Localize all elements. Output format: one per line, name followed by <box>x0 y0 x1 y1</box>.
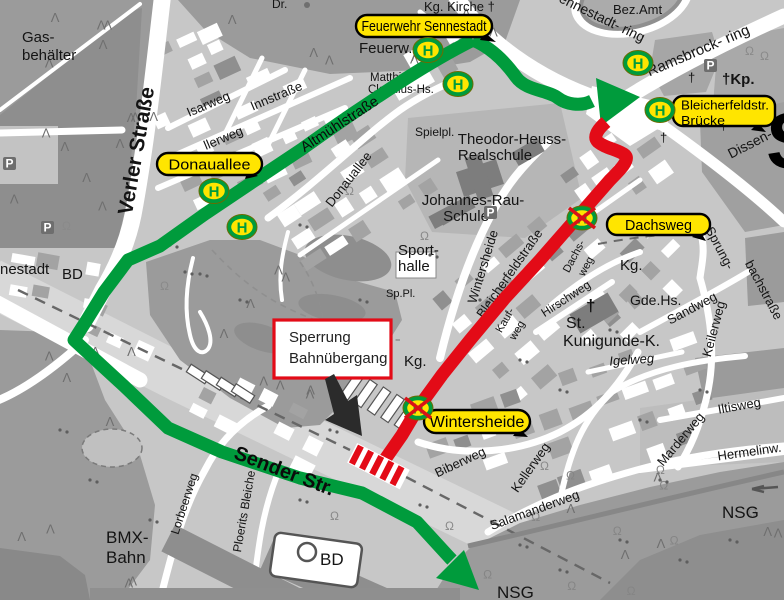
svg-text:Kg.: Kg. <box>404 353 427 370</box>
svg-text:†: † <box>660 130 667 145</box>
svg-text:Λ: Λ <box>127 344 136 359</box>
svg-text:H: H <box>453 77 464 94</box>
svg-text:Λ: Λ <box>42 125 51 140</box>
svg-text:Dachsweg: Dachsweg <box>625 217 692 234</box>
svg-text:Ω: Ω <box>330 509 339 523</box>
svg-text:Ω: Ω <box>760 49 769 63</box>
svg-text:Bez.Amt: Bez.Amt <box>613 2 663 17</box>
svg-text:Λ: Λ <box>763 524 772 539</box>
svg-text:Ω: Ω <box>745 44 754 58</box>
svg-text:Bahn: Bahn <box>106 548 146 567</box>
svg-text:Schule: Schule <box>443 208 489 225</box>
svg-text:Theodor-Heuss-: Theodor-Heuss- <box>458 131 566 148</box>
svg-text:behälter: behälter <box>22 47 76 64</box>
svg-text:P: P <box>43 221 51 235</box>
svg-text:Ω: Ω <box>483 567 492 581</box>
svg-text:NSG: NSG <box>722 503 759 522</box>
svg-text:Ω: Ω <box>160 279 169 293</box>
svg-text:Ω: Ω <box>566 469 575 483</box>
svg-text:†: † <box>586 296 595 315</box>
svg-text:Bleicherfeldstr.: Bleicherfeldstr. <box>681 98 769 113</box>
svg-text:†Kp.: †Kp. <box>722 71 755 88</box>
svg-text:Feuerwehr Sennestadt: Feuerwehr Sennestadt <box>362 19 487 35</box>
svg-text:Λ: Λ <box>116 136 125 151</box>
svg-text:Johannes-Rau-: Johannes-Rau- <box>422 192 525 209</box>
svg-text:Λ: Λ <box>46 521 55 536</box>
svg-text:Ω: Ω <box>613 524 622 538</box>
svg-text:Ω: Ω <box>567 579 576 593</box>
svg-text:Λ: Λ <box>106 414 115 429</box>
svg-text:Λ: Λ <box>306 383 315 398</box>
svg-text:Ω: Ω <box>445 519 454 533</box>
svg-text:Λ: Λ <box>309 45 318 60</box>
svg-text:Λ: Λ <box>259 374 268 389</box>
svg-text:Spielpl.: Spielpl. <box>415 125 454 139</box>
svg-text:Ω: Ω <box>420 229 429 243</box>
svg-text:Kg. Kirche †: Kg. Kirche † <box>424 0 495 14</box>
svg-text:Wintersheide: Wintersheide <box>430 414 525 431</box>
svg-text:†: † <box>688 70 695 85</box>
svg-text:Dr.: Dr. <box>272 0 287 11</box>
svg-text:H: H <box>423 43 434 60</box>
svg-text:Bahnübergang: Bahnübergang <box>289 350 387 367</box>
svg-text:Sp.Pl.: Sp.Pl. <box>386 288 415 300</box>
svg-text:Kunigunde-K.: Kunigunde-K. <box>563 333 660 350</box>
svg-text:Λ: Λ <box>61 139 70 154</box>
svg-text:Λ: Λ <box>62 370 71 385</box>
svg-text:Λ: Λ <box>82 170 91 185</box>
svg-text:Ω: Ω <box>627 584 636 598</box>
svg-text:H: H <box>237 220 248 237</box>
svg-text:BD: BD <box>320 550 344 569</box>
svg-text:Λ: Λ <box>99 37 108 52</box>
svg-text:Ω: Ω <box>62 219 71 233</box>
svg-text:St.: St. <box>566 315 586 332</box>
svg-text:Λ: Λ <box>657 536 666 551</box>
svg-text:NSG: NSG <box>497 583 534 600</box>
svg-text:H: H <box>209 184 220 201</box>
svg-text:Λ: Λ <box>654 469 663 484</box>
svg-text:Feuerw.: Feuerw. <box>359 40 412 57</box>
svg-text:Λ: Λ <box>51 10 60 25</box>
svg-text:Λ: Λ <box>325 52 334 67</box>
svg-text:Gas-: Gas- <box>22 29 55 46</box>
svg-text:BMX-: BMX- <box>106 528 149 547</box>
svg-text:nestadt: nestadt <box>0 261 50 278</box>
svg-text:Realschule: Realschule <box>458 147 532 164</box>
svg-text:Λ: Λ <box>98 198 107 213</box>
svg-text:H: H <box>655 103 666 120</box>
svg-text:Kg.: Kg. <box>620 257 643 274</box>
svg-text:Donauallee: Donauallee <box>169 156 251 173</box>
svg-text:P: P <box>486 206 494 220</box>
svg-text:Λ: Λ <box>128 573 137 588</box>
svg-text:Λ: Λ <box>220 326 229 341</box>
svg-text:Λ: Λ <box>621 547 630 562</box>
svg-text:Igelweg: Igelweg <box>609 350 656 368</box>
svg-text:Sperrung: Sperrung <box>289 329 351 346</box>
svg-text:H: H <box>633 56 644 73</box>
svg-text:Ω: Ω <box>670 533 679 547</box>
svg-text:Λ: Λ <box>228 12 237 27</box>
svg-text:Λ: Λ <box>281 270 290 285</box>
svg-text:Gde.Hs.: Gde.Hs. <box>630 292 681 308</box>
svg-text:Λ: Λ <box>17 529 26 544</box>
svg-text:P: P <box>5 157 13 171</box>
svg-text:Λ: Λ <box>103 17 112 32</box>
svg-text:P: P <box>706 59 714 73</box>
svg-text:halle: halle <box>398 258 430 275</box>
svg-text:Sport-: Sport- <box>398 242 439 259</box>
svg-text:Λ: Λ <box>45 349 54 364</box>
svg-text:Brücke: Brücke <box>681 113 725 128</box>
svg-text:Λ: Λ <box>10 191 19 206</box>
svg-text:BD: BD <box>62 266 83 283</box>
svg-text:Λ: Λ <box>774 525 783 540</box>
